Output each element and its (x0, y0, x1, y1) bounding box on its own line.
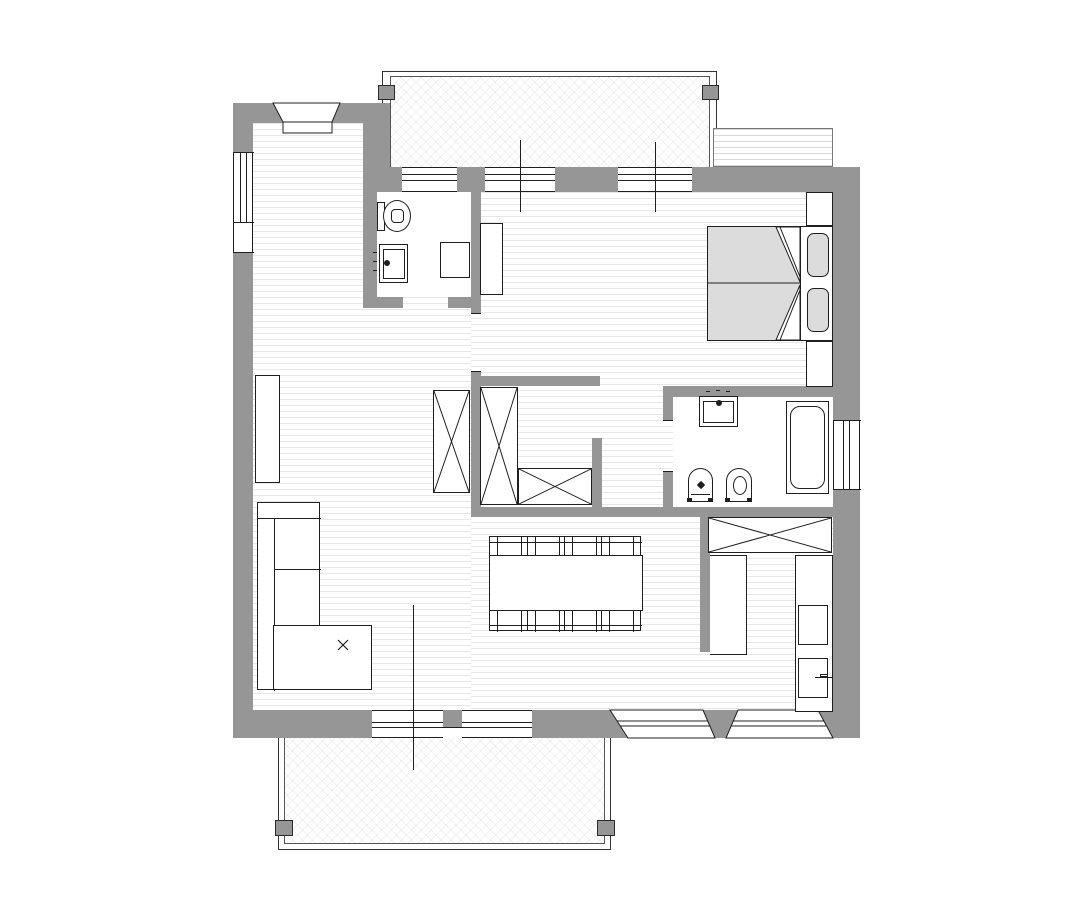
bidet-line (691, 494, 710, 495)
axis-line-window-3 (655, 142, 656, 212)
bidet-foot-left (687, 498, 692, 502)
floor-plan-canvas (0, 0, 1069, 910)
window-bottom-1-frame-b (372, 727, 443, 728)
window-left (233, 152, 253, 253)
wall-closet-top (480, 376, 600, 386)
wardrobe-2 (480, 387, 518, 505)
window-bottom-4 (726, 710, 833, 738)
window-left-sill (234, 222, 254, 223)
washbasin-small-tick-2 (373, 261, 377, 262)
kitchen-appliance-handle-grip (820, 674, 828, 677)
toilet-main-foot-left (725, 498, 730, 502)
balcony-top-floor (390, 76, 710, 167)
window-left-frame-a (240, 152, 241, 222)
washbasin-main (699, 396, 738, 427)
window-left-cap-top (234, 152, 254, 153)
bay-window-top-left (268, 102, 342, 135)
window-right-frame-a (843, 420, 844, 490)
wall-bath-main-left-lower (663, 472, 673, 508)
awning-top-right (713, 128, 833, 167)
wall-step-connector (363, 103, 390, 167)
bathtub-inner (790, 406, 825, 489)
toilet-main (726, 468, 752, 502)
bed-duvet-folds (708, 227, 800, 340)
pillow-bottom (807, 288, 829, 332)
dining-chair-6 (527, 610, 567, 631)
balcony-top-post-right (702, 85, 719, 100)
window-bottom-post-sill (443, 727, 462, 738)
toilet-main-foot-right (747, 498, 752, 502)
wall-bath-main-top (663, 386, 833, 397)
toilet-main-bowl (733, 476, 747, 495)
window-top-1-frame-b (402, 180, 457, 181)
dining-chair-3 (564, 536, 604, 556)
bedroom-dresser (480, 223, 503, 295)
nightstand-south (806, 341, 833, 387)
balcony-bottom-floor (284, 738, 605, 844)
window-right-cap-top (834, 420, 861, 421)
windows-bottom-splayed (600, 709, 840, 739)
nightstand-north (806, 192, 833, 226)
balcony-bottom-post-right (597, 820, 615, 836)
window-top-1-frame-a (402, 174, 457, 175)
dining-chair-4 (601, 536, 641, 556)
washbasin-main-tick-1 (706, 391, 710, 392)
dining-chair-1 (489, 536, 529, 556)
window-right-cap-bottom (834, 489, 861, 490)
bidet (688, 468, 713, 502)
balcony-bottom-post-left (275, 820, 293, 836)
window-bottom-2-frame-a (462, 722, 532, 723)
wall-south-corridor (471, 507, 833, 517)
washbasin-small-tick-1 (373, 252, 377, 253)
window-bottom-3 (610, 710, 715, 738)
washbasin-small-tick-3 (373, 270, 377, 271)
bathtub (786, 401, 829, 494)
axis-line-balcony-door (413, 605, 414, 770)
pillow-top (807, 233, 829, 277)
washbasin-main-tick-3 (726, 391, 730, 392)
wall-closet-stub (592, 438, 602, 508)
dining-table (489, 555, 643, 611)
wall-bath-small-bottom-left (363, 297, 403, 308)
window-right-frame-b (849, 420, 850, 490)
wardrobe-kitchen (708, 517, 832, 553)
sofa-seat-division (274, 569, 321, 570)
kitchen-tall-cabinet (710, 555, 747, 655)
sofa-chaise (273, 625, 372, 690)
window-left-cap-bottom (234, 252, 254, 253)
door-jamb-bath-main-bottom (663, 471, 673, 472)
kitchen-appliance-lower (798, 658, 828, 698)
balcony-top (378, 71, 719, 167)
washbasin-main-faucet (716, 400, 722, 406)
window-right (833, 420, 860, 490)
dining-chair-8 (601, 610, 641, 631)
wall-bath-small-left (363, 192, 377, 308)
window-top-1 (402, 167, 457, 192)
door-jamb-bath-main-top (663, 420, 673, 421)
dining-chair-5 (489, 610, 529, 631)
balcony-top-post-left (378, 85, 395, 100)
bed-mattresses (707, 226, 801, 341)
window-bottom-1 (372, 710, 443, 738)
kitchen-appliance-handle (815, 677, 833, 678)
dining-chair-7 (564, 610, 604, 631)
wall-console (255, 375, 280, 483)
window-left-frame-b (246, 152, 247, 222)
window-bottom-2-frame-b (462, 727, 532, 728)
toilet-small-seat (391, 209, 404, 223)
balcony-bottom (271, 738, 615, 851)
door-jamb-bedroom-bottom (471, 371, 481, 372)
dining-chair-2 (527, 536, 567, 556)
washbasin-main-tick-2 (716, 390, 720, 391)
bidet-foot-right (708, 498, 713, 502)
shower-box (440, 242, 470, 278)
sofa-armrest-line (258, 518, 321, 519)
door-jamb-bedroom-top (471, 313, 481, 314)
window-bottom-1-frame-a (372, 722, 443, 723)
wardrobe-3 (518, 468, 592, 505)
kitchen-appliance-upper (798, 605, 828, 645)
washbasin-small-faucet (384, 260, 390, 266)
axis-line-window-2 (520, 140, 521, 212)
washbasin-small (379, 244, 408, 283)
bidet-drain (697, 481, 705, 489)
window-bottom-2 (462, 710, 532, 738)
sofa-x-mark (337, 639, 349, 651)
wardrobe-1 (433, 390, 470, 493)
